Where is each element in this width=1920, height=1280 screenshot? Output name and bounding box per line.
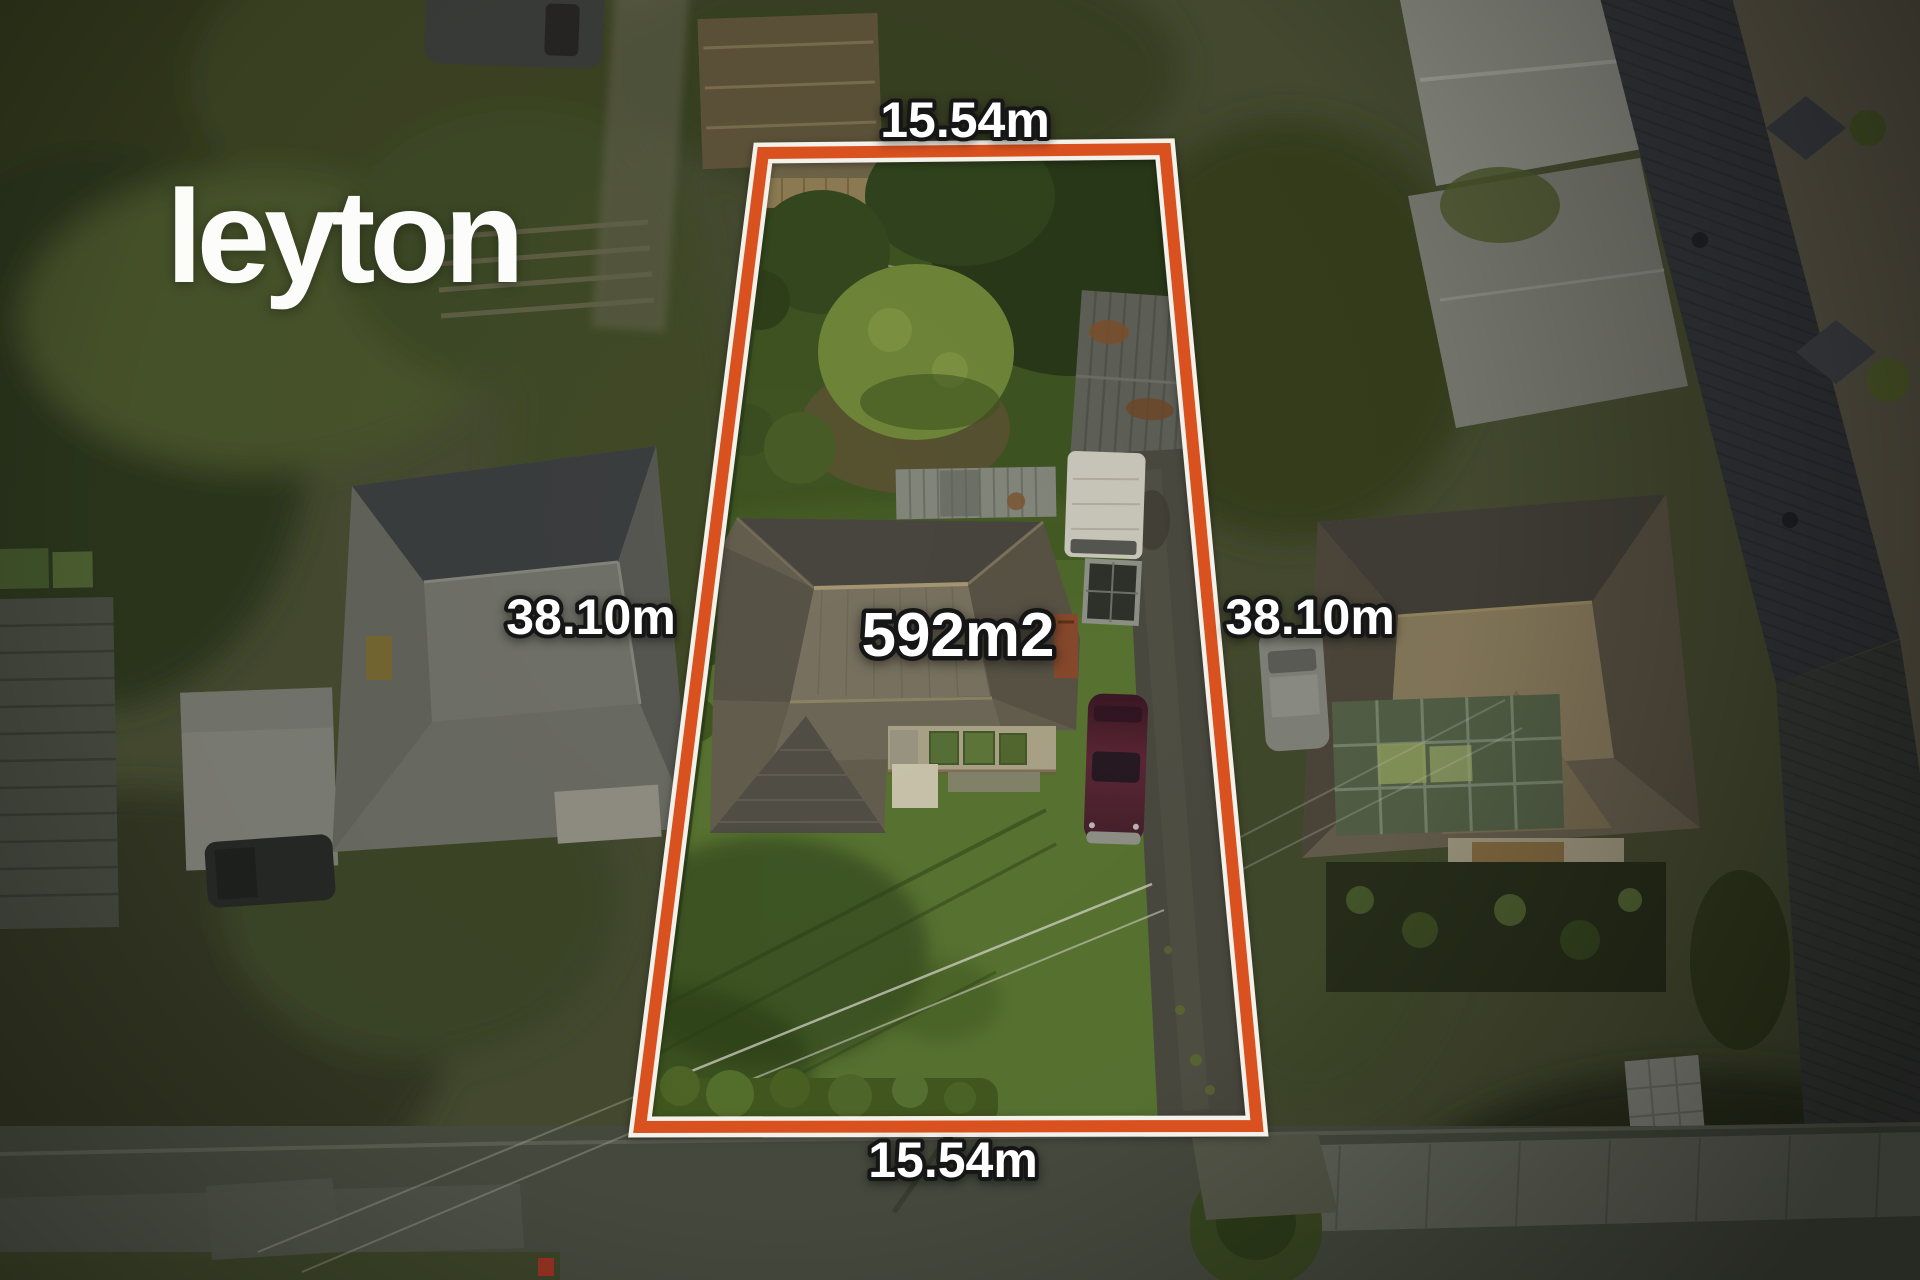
land-area-label: 592m2 [861, 601, 1054, 670]
frontage-label-bottom: 15.54m [868, 1132, 1038, 1188]
aerial-photo: leyton 15.54m 592m2 38.10m 38.10m 15.54m [0, 0, 1920, 1280]
depth-label-left: 38.10m [506, 589, 676, 645]
frontage-label-top: 15.54m [880, 92, 1050, 148]
real-estate-aerial-ad: leyton 15.54m 592m2 38.10m 38.10m 15.54m [0, 0, 1920, 1280]
agency-logo: leyton [166, 163, 519, 310]
depth-label-right: 38.10m [1225, 589, 1395, 645]
